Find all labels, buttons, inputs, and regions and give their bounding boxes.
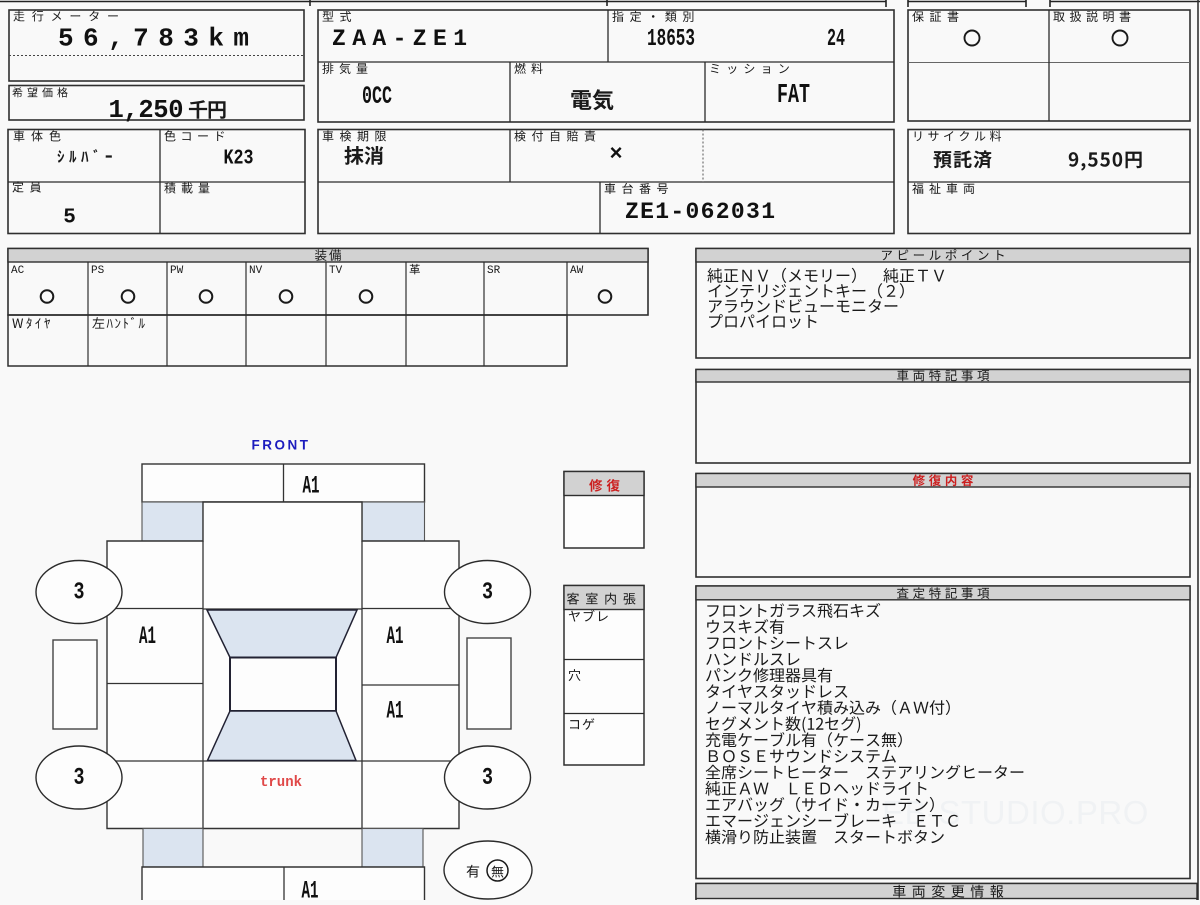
svg-text:trunk: trunk [260, 775, 302, 791]
svg-text:1,250: 1,250 [109, 96, 184, 125]
svg-text:AC: AC [11, 265, 25, 277]
svg-text:ZAA-ZE1: ZAA-ZE1 [332, 26, 467, 52]
svg-text:5: 5 [63, 207, 76, 230]
svg-text:PW: PW [170, 265, 184, 277]
svg-text:A1: A1 [139, 622, 156, 651]
svg-text:18653: 18653 [647, 26, 695, 53]
svg-text:K23: K23 [224, 148, 254, 171]
svg-text:A1: A1 [302, 877, 319, 901]
svg-text:SR: SR [487, 265, 501, 277]
svg-text:PS: PS [91, 265, 105, 277]
svg-text:3: 3 [482, 580, 493, 607]
svg-text:3: 3 [74, 580, 85, 607]
svg-text:ZE1-062031: ZE1-062031 [625, 199, 775, 225]
svg-text:AW: AW [570, 265, 584, 277]
svg-text:A1: A1 [387, 622, 404, 651]
svg-text:3: 3 [74, 765, 85, 792]
svg-text:A1: A1 [387, 697, 404, 726]
svg-text:24: 24 [827, 26, 845, 53]
svg-text:NV: NV [249, 265, 263, 277]
svg-text:×: × [610, 140, 623, 165]
svg-text:TV: TV [329, 265, 343, 277]
svg-text:3: 3 [482, 765, 493, 792]
svg-text:A1: A1 [303, 472, 320, 501]
svg-text:FRONT: FRONT [252, 438, 311, 453]
svg-text:0CC: 0CC [362, 82, 392, 111]
svg-text:FAT: FAT [777, 81, 810, 111]
